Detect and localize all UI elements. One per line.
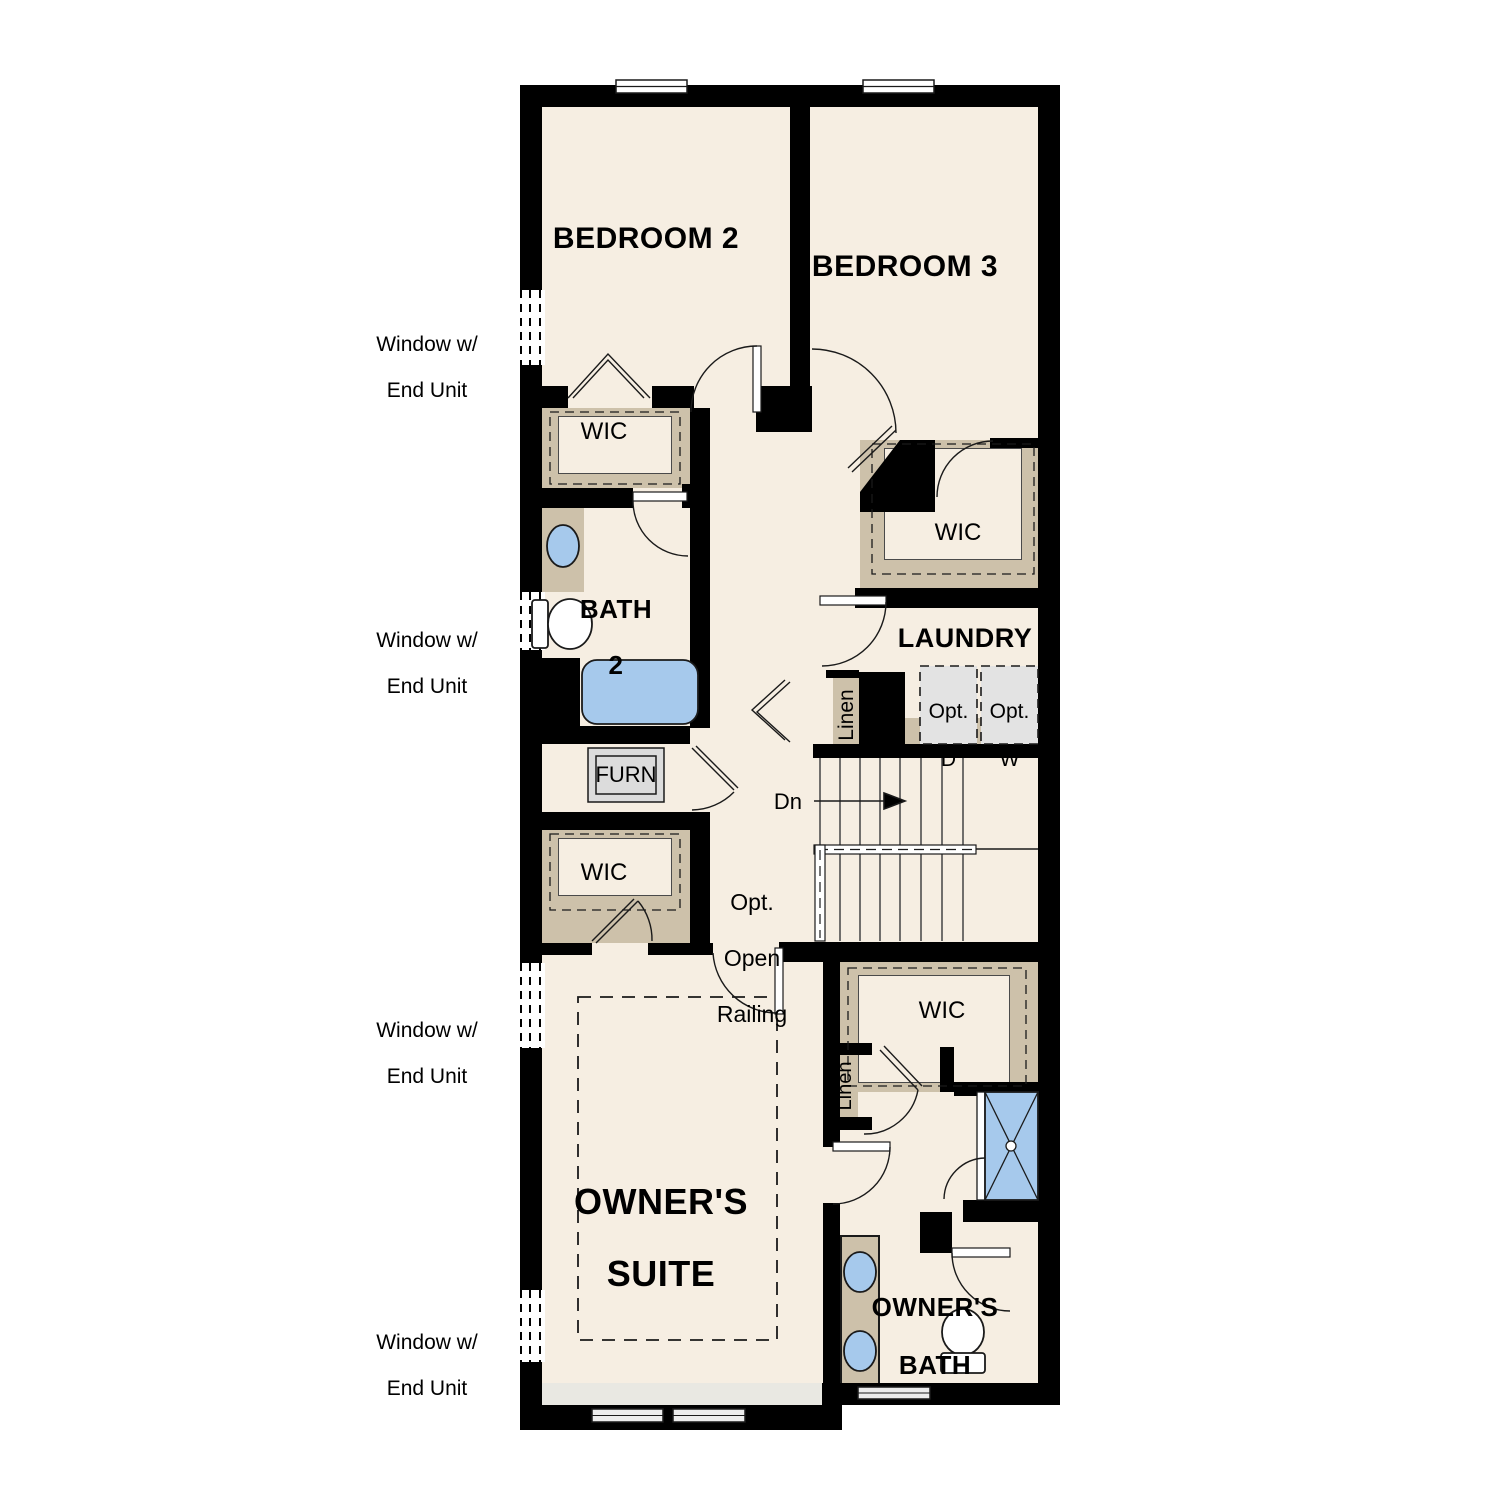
window-note-2-line1: Window w/ xyxy=(376,629,478,652)
wic-hall-door xyxy=(592,899,652,943)
bedroom3-door xyxy=(812,349,896,472)
bath2-label-line2: 2 xyxy=(609,650,624,680)
opt-washer-line1: Opt. xyxy=(990,700,1030,723)
window-note-3-line2: End Unit xyxy=(387,1065,468,1088)
opt-dryer-line1: Opt. xyxy=(929,700,969,723)
opt-dryer-label: Opt. D xyxy=(920,676,977,772)
window-note-1-line1: Window w/ xyxy=(376,333,478,356)
window-note-4-line2: End Unit xyxy=(387,1377,468,1400)
wic-owners-label: WIC xyxy=(882,998,1002,1024)
window-note-4: Window w/ End Unit xyxy=(342,1308,512,1400)
window-note-2: Window w/ End Unit xyxy=(342,606,512,698)
wic-bedroom3-door xyxy=(937,441,993,497)
stairs-down-label: Dn xyxy=(742,790,802,814)
opt-open-railing-line1: Opt. xyxy=(730,889,773,915)
owners-suite-line1: OWNER'S xyxy=(574,1181,748,1222)
owners-suite-label: OWNER'S SUITE xyxy=(511,1148,811,1292)
opt-open-railing-label: Opt. Open Railing xyxy=(672,860,832,1028)
wic-bedroom3-label: WIC xyxy=(898,520,1018,546)
window-note-1-line2: End Unit xyxy=(387,379,468,402)
furnace-label: FURN xyxy=(566,763,686,787)
owners-bath-door xyxy=(833,1142,890,1204)
owners-bath-label: OWNER'S BATH xyxy=(835,1264,1035,1380)
owners-bath-line2: BATH xyxy=(899,1350,971,1380)
bath2-label: BATH 2 xyxy=(556,567,676,679)
bath2-label-line1: BATH xyxy=(580,594,652,624)
bath2-sink xyxy=(547,525,579,567)
window-note-4-line1: Window w/ xyxy=(376,1331,478,1354)
wic-hall-label: WIC xyxy=(544,860,664,886)
opt-washer-line2: W xyxy=(1000,748,1020,771)
bedroom2-door xyxy=(691,346,761,412)
linen-owners-label: Linen xyxy=(834,1046,856,1126)
opt-open-railing-line2: Open xyxy=(724,945,780,971)
linen-laundry-door xyxy=(752,680,790,742)
bedroom2-label: BEDROOM 2 xyxy=(496,222,796,255)
window-note-3: Window w/ End Unit xyxy=(342,996,512,1088)
wic-bedroom2-door xyxy=(568,354,650,398)
wall-wedges xyxy=(860,440,935,512)
window-note-2-line2: End Unit xyxy=(387,675,468,698)
opt-open-railing-line3: Railing xyxy=(717,1001,787,1027)
opt-washer-label: Opt. W xyxy=(981,676,1038,772)
bath2-door xyxy=(633,492,688,556)
floorplan-canvas: BEDROOM 2 BEDROOM 3 WIC WIC WIC WIC BATH… xyxy=(0,0,1500,1500)
wic-bedroom2-label: WIC xyxy=(544,419,664,445)
linen-laundry-label: Linen xyxy=(835,675,857,755)
window-note-1: Window w/ End Unit xyxy=(342,310,512,402)
open-railing xyxy=(814,845,976,941)
opt-dryer-line2: D xyxy=(941,748,956,771)
owners-shower xyxy=(977,1092,1038,1200)
bedroom3-label: BEDROOM 3 xyxy=(755,250,1055,283)
furnace-door xyxy=(692,746,738,810)
owners-suite-line2: SUITE xyxy=(607,1253,716,1294)
laundry-label: LAUNDRY xyxy=(845,624,1085,654)
wic-owners-door xyxy=(864,1046,922,1134)
window-note-3-line1: Window w/ xyxy=(376,1019,478,1042)
owners-bath-line1: OWNER'S xyxy=(872,1292,999,1322)
